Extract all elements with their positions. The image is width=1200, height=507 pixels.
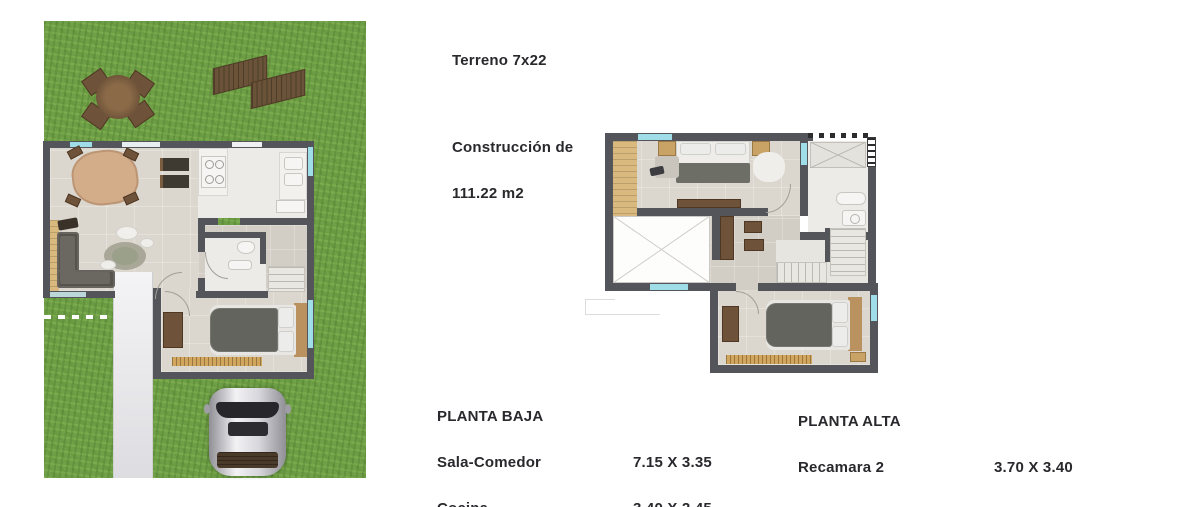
window-icon xyxy=(122,142,160,147)
wall xyxy=(196,291,268,298)
window-icon xyxy=(650,284,688,290)
sink-icon xyxy=(284,157,303,170)
burner-icon xyxy=(215,160,224,169)
pouf-icon xyxy=(140,238,154,248)
headboard xyxy=(848,297,862,351)
void-x-icon xyxy=(613,216,710,283)
towel-ladder-icon xyxy=(867,137,876,167)
bed-duvet xyxy=(766,303,832,347)
table-row: Sala-Comedor7.15 X 3.35 xyxy=(437,455,767,470)
room-name: Cocina xyxy=(437,501,633,507)
window-icon xyxy=(70,142,92,147)
wall xyxy=(605,133,813,141)
planta-baja-title: PLANTA BAJA xyxy=(437,409,767,424)
toilet-icon xyxy=(237,241,255,254)
bed-duvet xyxy=(210,308,278,352)
cooktop-icon xyxy=(284,173,303,186)
wall xyxy=(710,291,718,373)
planta-alta-title: PLANTA ALTA xyxy=(798,414,1168,429)
pillow-icon xyxy=(832,326,848,347)
car-rear-window xyxy=(217,452,278,468)
table-row: Recamara 23.70 X 3.40 xyxy=(798,460,1168,475)
bench-icon xyxy=(744,239,764,251)
sofa-cushions xyxy=(62,272,110,284)
chair-icon xyxy=(160,158,189,171)
construction-label-line1: Construcción de xyxy=(452,140,573,155)
terrain-label: Terreno 7x22 xyxy=(452,53,573,68)
wall xyxy=(758,283,878,291)
fridge-icon xyxy=(276,200,305,213)
wall xyxy=(710,365,878,373)
car-roof-glass xyxy=(228,422,268,436)
car-mirror xyxy=(204,404,210,414)
wall xyxy=(205,232,266,238)
car-mirror xyxy=(285,404,291,414)
room-dims: 3.70 X 3.40 xyxy=(994,460,1073,475)
sink-icon xyxy=(228,260,252,270)
wall xyxy=(198,218,205,252)
tv-console-icon xyxy=(677,199,741,208)
room-name: Recamara 2 xyxy=(798,460,994,475)
room-dims: 7.15 X 3.35 xyxy=(633,455,712,470)
wall xyxy=(605,133,613,291)
construction-label-line2: 111.22 m2 xyxy=(452,186,573,201)
room-dims: 3.40 X 2.45 xyxy=(633,501,712,507)
spacer xyxy=(452,99,573,109)
nightstand-icon xyxy=(658,141,676,156)
wall xyxy=(260,238,266,264)
closet-icon xyxy=(720,216,734,260)
planta-baja-table: PLANTA BAJA Sala-Comedor7.15 X 3.35 Coci… xyxy=(437,378,767,507)
bathtub-icon xyxy=(836,192,866,205)
pillow-icon xyxy=(278,307,294,328)
lower-outline-line xyxy=(585,314,660,315)
burner-icon xyxy=(205,160,214,169)
window-icon xyxy=(308,147,313,176)
window-icon xyxy=(308,300,313,348)
table-row: Cocina3.40 X 2.45 xyxy=(437,501,767,507)
car-windshield xyxy=(216,402,279,418)
pillow-icon xyxy=(832,302,848,323)
wall xyxy=(868,235,876,283)
side-table-icon xyxy=(850,352,866,362)
wall xyxy=(710,283,736,291)
boundary-dashed-line xyxy=(44,315,114,319)
bench-icon xyxy=(744,221,762,233)
stairs-upper-run-icon xyxy=(830,228,866,276)
dresser-icon xyxy=(163,312,183,348)
rug-icon xyxy=(172,357,262,366)
wall xyxy=(153,288,161,372)
rug-icon xyxy=(112,247,138,265)
pillow-icon xyxy=(680,143,711,155)
wall xyxy=(240,218,314,225)
burner-icon xyxy=(215,175,224,184)
shower-x-icon xyxy=(810,142,866,168)
lower-outline-line xyxy=(585,299,615,300)
pillow-icon xyxy=(715,143,746,155)
rug-icon xyxy=(726,355,812,364)
wall xyxy=(868,167,876,235)
railing-icon xyxy=(808,133,868,138)
pouf-icon xyxy=(116,226,138,240)
toilet-bowl xyxy=(850,214,860,224)
burner-icon xyxy=(205,175,214,184)
wood-floor-strip xyxy=(613,141,637,216)
wall xyxy=(43,141,50,298)
stairs-ground-icon xyxy=(268,266,305,292)
wall xyxy=(712,216,720,260)
chair-icon xyxy=(160,175,189,188)
window-icon xyxy=(638,134,672,140)
driveway xyxy=(113,272,153,478)
window-icon xyxy=(871,295,877,321)
lower-outline-line xyxy=(585,299,586,315)
window-icon xyxy=(232,142,262,147)
window-icon xyxy=(50,292,86,297)
planta-alta-table: PLANTA ALTA Recamara 23.70 X 3.40 Closet… xyxy=(798,383,1168,507)
patio-table-icon xyxy=(96,75,140,119)
bed-foot-blanket xyxy=(676,163,750,183)
window-icon xyxy=(801,143,807,165)
rug-icon xyxy=(753,152,785,182)
floorplan-sheet: Terreno 7x22 Construcción de 111.22 m2 xyxy=(0,0,1200,507)
stairs-lower-run-icon xyxy=(776,262,827,283)
header-block: Terreno 7x22 Construcción de 111.22 m2 xyxy=(452,22,573,232)
wall xyxy=(153,372,314,379)
pillow-icon xyxy=(278,331,294,352)
room-name: Sala-Comedor xyxy=(437,455,633,470)
pouf-icon xyxy=(100,260,116,270)
